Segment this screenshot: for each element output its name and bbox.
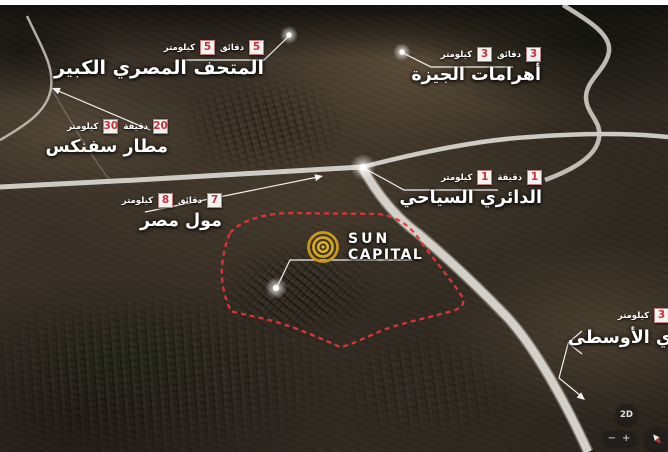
landmark-name: أهرامات الجيزة <box>411 65 541 85</box>
minutes-badge: 3 <box>526 47 541 62</box>
compass-button[interactable] <box>645 427 668 451</box>
km-unit: كيلومتر <box>618 311 649 321</box>
top-white-border <box>0 0 668 5</box>
minutes-badge: 7 <box>207 193 222 208</box>
minutes-badge: 5 <box>249 40 264 55</box>
landmark-name: المتحف المصري الكبير <box>54 58 264 80</box>
distance-row: 7 دقائق 8 كيلومتر <box>120 193 222 208</box>
landmark-sphinx-airport: 20 دقيقة 30 كيلومتر مطار سفنكس <box>46 119 168 157</box>
distance-row: 20 دقيقة 30 كيلومتر <box>65 119 168 134</box>
logo-line-1: SUN <box>348 232 423 246</box>
km-unit: كيلومتر <box>122 196 153 206</box>
landmark-giza-pyramids: 3 دقائق 3 كيلومتر أهرامات الجيزة <box>411 47 541 85</box>
minutes-unit: دقائق <box>220 43 244 53</box>
km-badge: 1 <box>477 170 492 185</box>
landmark-name: مول مصر <box>140 211 222 231</box>
sun-capital-logo: SUN CAPITAL <box>306 230 423 264</box>
zoom-in-button[interactable]: + <box>622 434 630 444</box>
km-badge: 3 <box>477 47 492 62</box>
minutes-unit: دقائق <box>497 50 521 60</box>
km-badge: 5 <box>200 40 215 55</box>
landmark-tourist-ring-road: 1 دقيقة 1 كيلومتر الدائري السياحي <box>399 170 542 208</box>
landmark-mall-of-egypt: 7 دقائق 8 كيلومتر مول مصر <box>120 193 222 231</box>
distance-row: 5 دقائق 5 كيلومتر <box>162 40 264 55</box>
landmark-grand-egyptian-museum: 5 دقائق 5 كيلومتر المتحف المصري الكبير <box>54 40 264 80</box>
landmark-name: الدائري الأوسطى <box>568 328 668 348</box>
km-badge: 30 <box>103 119 118 134</box>
zoom-control[interactable]: − + <box>602 431 636 446</box>
distance-row: 3 دقائق 3 كيلومتر <box>616 308 668 323</box>
minutes-unit: دقائق <box>178 196 202 206</box>
km-badge: 3 <box>654 308 668 323</box>
km-unit: كيلومتر <box>441 173 472 183</box>
landmark-middle-ring-road: 3 دقائق 3 كيلومتر الدائري الأوسطى <box>568 308 668 348</box>
satellite-map-viewport[interactable]: 5 دقائق 5 كيلومتر المتحف المصري الكبير 3… <box>0 0 668 452</box>
km-unit: كيلومتر <box>164 43 195 53</box>
minutes-unit: دقيقة <box>497 173 522 183</box>
distance-row: 1 دقيقة 1 كيلومتر <box>439 170 542 185</box>
landmark-name: الدائري السياحي <box>399 188 542 208</box>
zoom-out-button[interactable]: − <box>608 434 616 444</box>
km-badge: 8 <box>158 193 173 208</box>
2d-mode-button[interactable]: 2D <box>616 404 637 425</box>
minutes-unit: دقيقة <box>123 122 148 132</box>
logo-line-2: CAPITAL <box>348 248 423 262</box>
logo-wordmark: SUN CAPITAL <box>348 232 423 262</box>
distance-row: 3 دقائق 3 كيلومتر <box>439 47 541 62</box>
minutes-badge: 1 <box>527 170 542 185</box>
sun-capital-sun-icon <box>306 230 340 264</box>
km-unit: كيلومتر <box>441 50 472 60</box>
landmark-name: مطار سفنكس <box>46 137 168 157</box>
compass-needle-icon <box>649 430 665 448</box>
minutes-badge: 20 <box>153 119 168 134</box>
km-unit: كيلومتر <box>67 122 98 132</box>
